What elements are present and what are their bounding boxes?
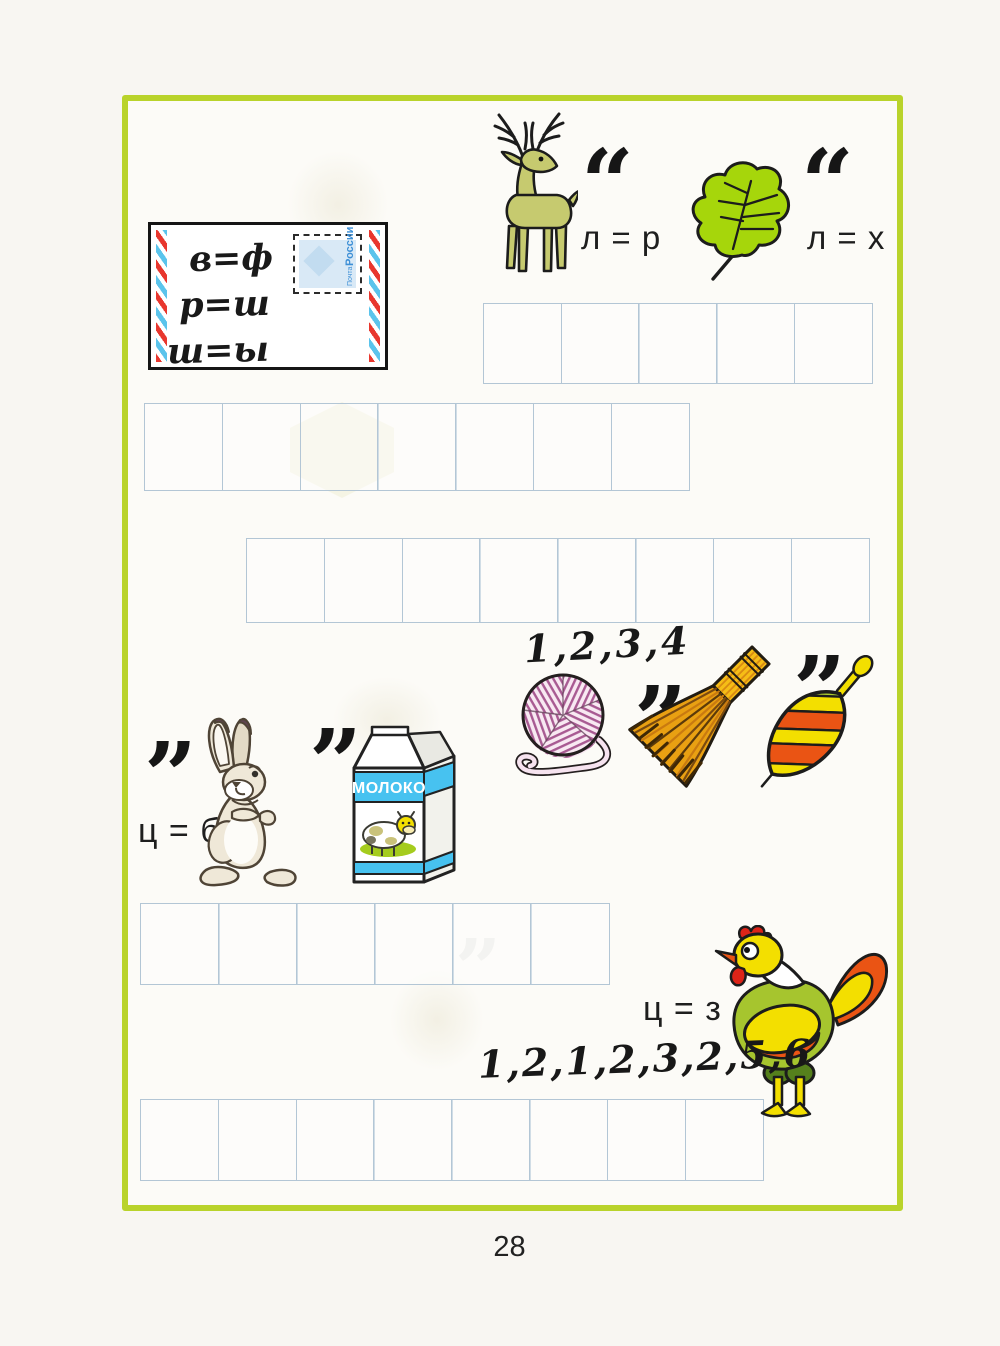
- answer-grid-1: [483, 303, 873, 384]
- answer-cell[interactable]: [479, 538, 558, 623]
- double-quote-icon: “: [801, 137, 854, 229]
- answer-cell[interactable]: [716, 303, 795, 384]
- answer-grid-4: [140, 903, 610, 985]
- deer-icon: [478, 105, 578, 280]
- answer-cell[interactable]: [140, 1099, 219, 1181]
- answer-cell[interactable]: [402, 538, 481, 623]
- stamp-emblem-icon: [303, 245, 334, 276]
- hare-icon: [188, 710, 316, 890]
- workbook-page: ” в=ф р=ш ш=ы Почта России: [0, 0, 1000, 1346]
- answer-cell[interactable]: [451, 1099, 530, 1181]
- stamp-text: Почта России: [345, 242, 356, 286]
- answer-cell[interactable]: [607, 1099, 686, 1181]
- rule-deer: л = р: [581, 221, 661, 254]
- answer-cell[interactable]: [377, 403, 456, 491]
- substitution-rule: в=ф: [189, 240, 274, 277]
- answer-cell[interactable]: [529, 1099, 608, 1181]
- answer-cell[interactable]: [300, 403, 379, 491]
- syllable-numbers: 1,2,1,2,3,2,5,6: [477, 1034, 812, 1084]
- answer-cell[interactable]: [218, 903, 298, 985]
- answer-cell[interactable]: [452, 903, 532, 985]
- page-number: 28: [122, 1231, 897, 1264]
- answer-cell[interactable]: [222, 403, 301, 491]
- answer-grid-5: [140, 1099, 764, 1181]
- answer-cell[interactable]: [635, 538, 714, 623]
- substitution-rule: р=ш: [179, 286, 271, 323]
- stamp-picture: Почта России: [299, 240, 356, 288]
- double-quote-icon: “: [581, 137, 634, 229]
- answer-cell[interactable]: [483, 303, 562, 384]
- answer-grid-3: [246, 538, 870, 623]
- answer-cell[interactable]: [561, 303, 640, 384]
- answer-cell[interactable]: [530, 903, 610, 985]
- answer-cell[interactable]: [533, 403, 612, 491]
- answer-cell[interactable]: [144, 403, 223, 491]
- answer-cell[interactable]: [374, 903, 454, 985]
- envelope: в=ф р=ш ш=ы Почта России: [148, 222, 388, 370]
- answer-cell[interactable]: [611, 403, 690, 491]
- postage-stamp: Почта России: [293, 234, 362, 294]
- milk-label: МОЛОКО: [352, 780, 426, 797]
- answer-cell[interactable]: [324, 538, 403, 623]
- answer-cell[interactable]: [638, 303, 717, 384]
- answer-cell[interactable]: [713, 538, 792, 623]
- answer-cell[interactable]: [296, 1099, 375, 1181]
- answer-cell[interactable]: [296, 903, 376, 985]
- spinning-top-icon: [745, 655, 880, 805]
- milk-carton-icon: МОЛОКО: [346, 722, 464, 894]
- answer-cell[interactable]: [246, 538, 325, 623]
- answer-cell[interactable]: [791, 538, 870, 623]
- airmail-stripe-left: [156, 230, 167, 362]
- answer-cell[interactable]: [373, 1099, 452, 1181]
- airmail-stripe-right: [369, 230, 380, 362]
- answer-cell[interactable]: [455, 403, 534, 491]
- rule-leaf: л = х: [807, 221, 885, 254]
- answer-grid-2: [144, 403, 690, 491]
- rooster-icon: [712, 925, 890, 1120]
- substitution-rule: ш=ы: [167, 332, 270, 370]
- leaf-icon: [685, 155, 803, 281]
- answer-cell[interactable]: [140, 903, 220, 985]
- answer-cell[interactable]: [218, 1099, 297, 1181]
- answer-cell[interactable]: [794, 303, 873, 384]
- rule-rooster: ц = з: [643, 992, 722, 1026]
- answer-cell[interactable]: [557, 538, 636, 623]
